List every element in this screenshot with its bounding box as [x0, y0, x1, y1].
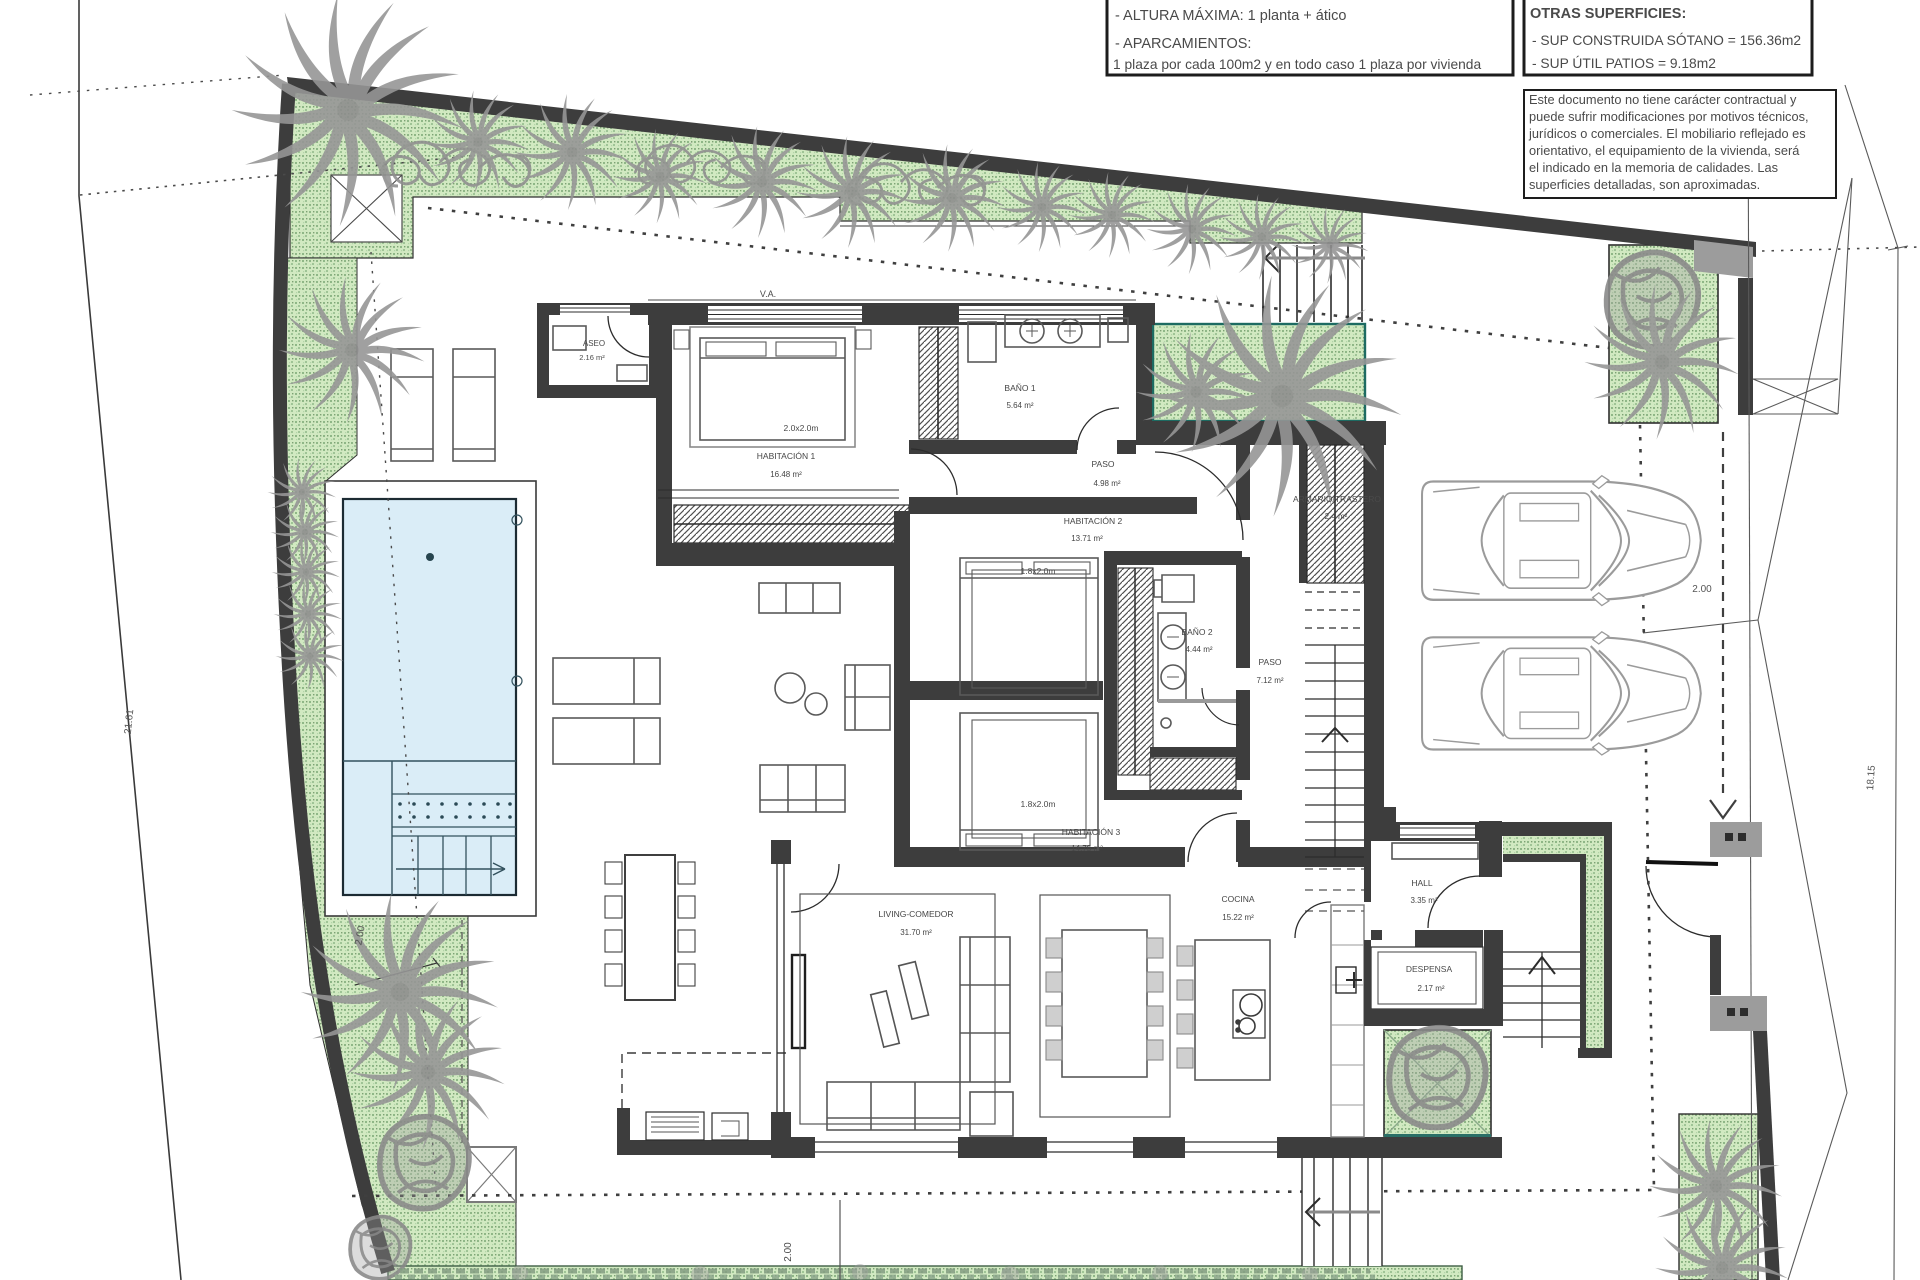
svg-text:2.00: 2.00 [783, 1242, 794, 1262]
svg-text:OTRAS SUPERFICIES:: OTRAS SUPERFICIES: [1530, 6, 1686, 22]
svg-text:1.8x2.0m: 1.8x2.0m [1021, 566, 1056, 576]
svg-text:jurídicos o comerciales. El mo: jurídicos o comerciales. El mobiliario r… [1528, 126, 1806, 141]
svg-text:4.44 m²: 4.44 m² [1185, 645, 1212, 654]
svg-text:HABITACIÓN 3: HABITACIÓN 3 [1062, 827, 1121, 837]
svg-text:DESPENSA: DESPENSA [1406, 964, 1453, 974]
svg-text:2.0x2.0m: 2.0x2.0m [784, 423, 819, 433]
svg-text:HALL: HALL [1411, 878, 1433, 888]
svg-text:BAÑO 2: BAÑO 2 [1181, 627, 1212, 637]
svg-text:- SUP ÚTIL PATIOS = 9.18m2: - SUP ÚTIL PATIOS = 9.18m2 [1532, 55, 1716, 71]
svg-text:13.71 m²: 13.71 m² [1071, 534, 1103, 543]
svg-text:PASO: PASO [1259, 657, 1282, 667]
svg-text:7.12 m²: 7.12 m² [1256, 676, 1283, 685]
svg-text:LIVING-COMEDOR: LIVING-COMEDOR [878, 909, 953, 919]
svg-text:HABITACIÓN 2: HABITACIÓN 2 [1064, 516, 1123, 526]
svg-text:el indicado en la memoria de c: el indicado en la memoria de calidades. … [1529, 160, 1778, 175]
svg-text:16.48 m²: 16.48 m² [770, 470, 802, 479]
svg-text:Este documento no tiene caráct: Este documento no tiene carácter contrac… [1529, 92, 1797, 107]
svg-text:4.98 m²: 4.98 m² [1093, 479, 1120, 488]
svg-text:V.A.: V.A. [760, 289, 776, 299]
svg-text:15.22 m²: 15.22 m² [1222, 913, 1254, 922]
svg-text:ARMARIO/TRASTERO: ARMARIO/TRASTERO [1293, 494, 1381, 504]
svg-text:18.15: 18.15 [1865, 765, 1878, 791]
svg-text:PASO: PASO [1092, 459, 1115, 469]
svg-text:HABITACIÓN 1: HABITACIÓN 1 [757, 451, 816, 461]
svg-text:COCINA: COCINA [1221, 894, 1254, 904]
svg-text:14.75 m²: 14.75 m² [1071, 844, 1103, 853]
svg-text:- ALTURA MÁXIMA: 1 planta + át: - ALTURA MÁXIMA: 1 planta + ático [1115, 7, 1346, 24]
svg-text:- SUP CONSTRUIDA SÓTANO = 15: - SUP CONSTRUIDA SÓTANO = 156.36m2 [1532, 32, 1801, 48]
svg-text:superficies detalladas, son ap: superficies detalladas, son aproximadas. [1529, 177, 1760, 192]
svg-text:puede sufrir modificaciones po: puede sufrir modificaciones por motivos … [1529, 109, 1809, 124]
svg-text:1.8x2.0m: 1.8x2.0m [1021, 799, 1056, 809]
svg-text:1 plaza por cada 100m2 y en to: 1 plaza por cada 100m2 y en todo caso 1 … [1113, 57, 1481, 72]
svg-text:2.4 m²: 2.4 m² [1325, 512, 1348, 521]
svg-text:ASEO: ASEO [583, 339, 605, 348]
svg-text:- APARCAMIENTOS:: - APARCAMIENTOS: [1115, 36, 1251, 52]
svg-text:2.00: 2.00 [1692, 584, 1712, 595]
svg-text:orientativo, el equipamiento d: orientativo, el equipamiento de la vivie… [1529, 143, 1800, 158]
svg-text:31.70 m²: 31.70 m² [900, 928, 932, 937]
svg-text:2.17 m²: 2.17 m² [1417, 984, 1444, 993]
svg-text:3.35 m²: 3.35 m² [1410, 896, 1437, 905]
svg-text:2.16 m²: 2.16 m² [579, 353, 605, 362]
svg-text:5.64 m²: 5.64 m² [1006, 401, 1033, 410]
svg-text:BAÑO 1: BAÑO 1 [1004, 383, 1035, 393]
